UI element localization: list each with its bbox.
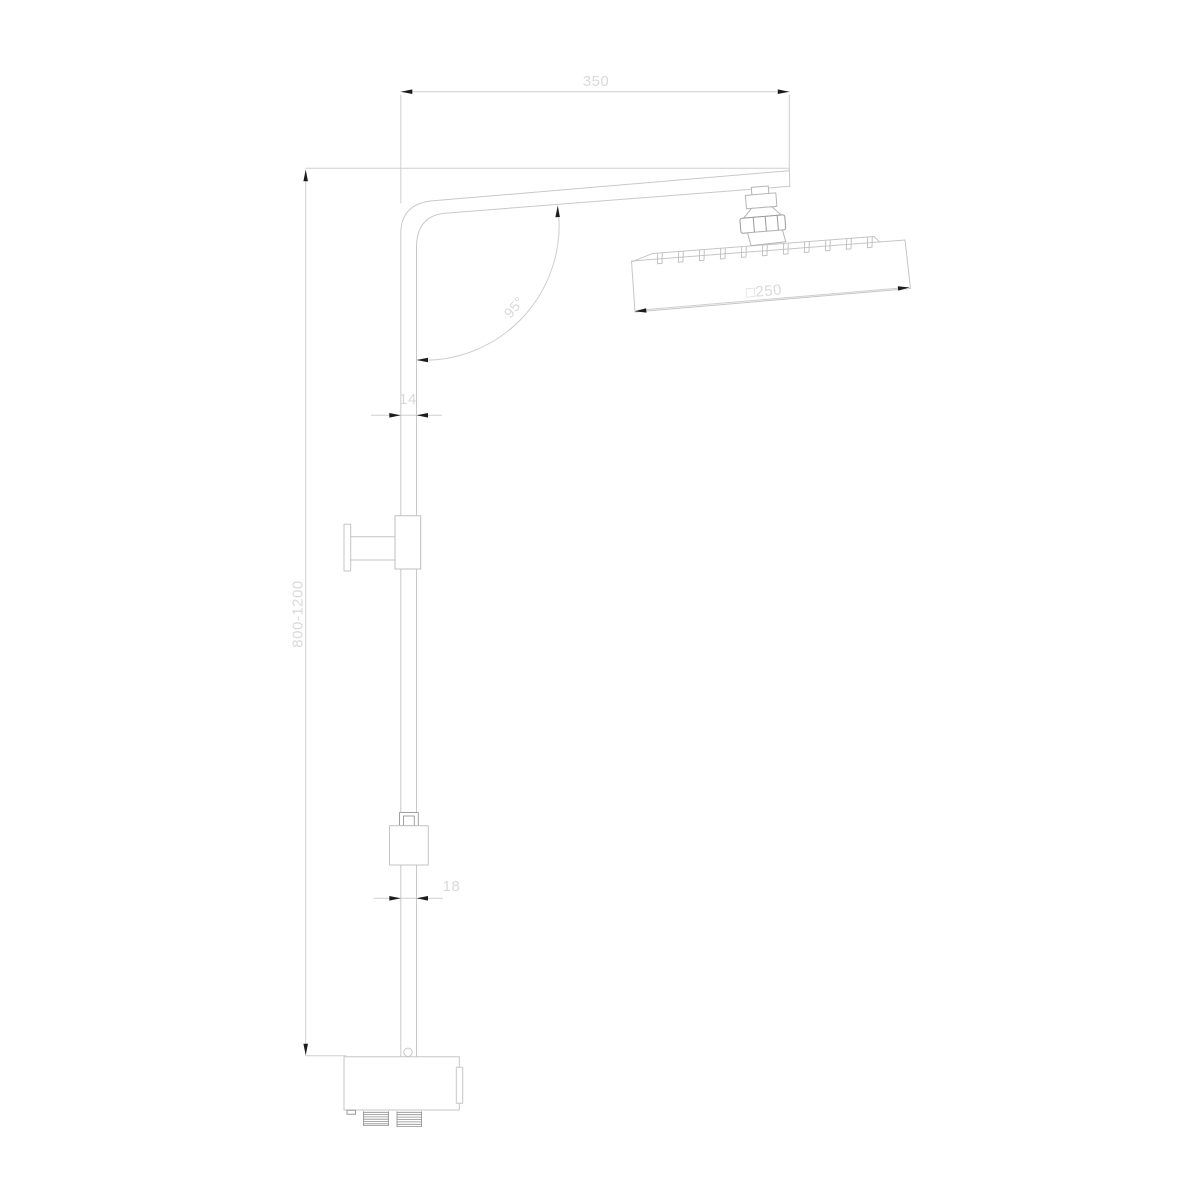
bottom-tab [347,1110,356,1114]
shower-arm-end [789,169,790,187]
head-connector [737,185,787,246]
threaded-outlet-left [364,1112,389,1126]
rain-shower-head [632,237,911,313]
hose-coupling [390,813,429,866]
coupling-block [390,826,429,865]
dim-upper-pipe-label: 14 [388,392,428,408]
dim-arm-length [401,92,790,203]
head-face [632,240,911,312]
side-plate [456,1067,462,1103]
dimension-arrowheads [303,89,909,1055]
screw-detail [404,1048,412,1056]
wall-bracket [344,524,395,571]
slider-block [395,516,421,569]
dim-arm-length-label: 350 [560,74,632,90]
dim-column-height-label: 800-1200 [291,574,307,655]
drawing-canvas [0,0,1200,1200]
dim-arm-angle [417,206,560,361]
drawing-sheet: 350 800-1200 14 18 95° □250 [0,0,1200,1200]
dim-column-height [306,170,346,1056]
mixer-body [344,1048,463,1114]
dim-lower-pipe-label: 18 [431,879,472,895]
threaded-outlet-right [397,1112,422,1127]
